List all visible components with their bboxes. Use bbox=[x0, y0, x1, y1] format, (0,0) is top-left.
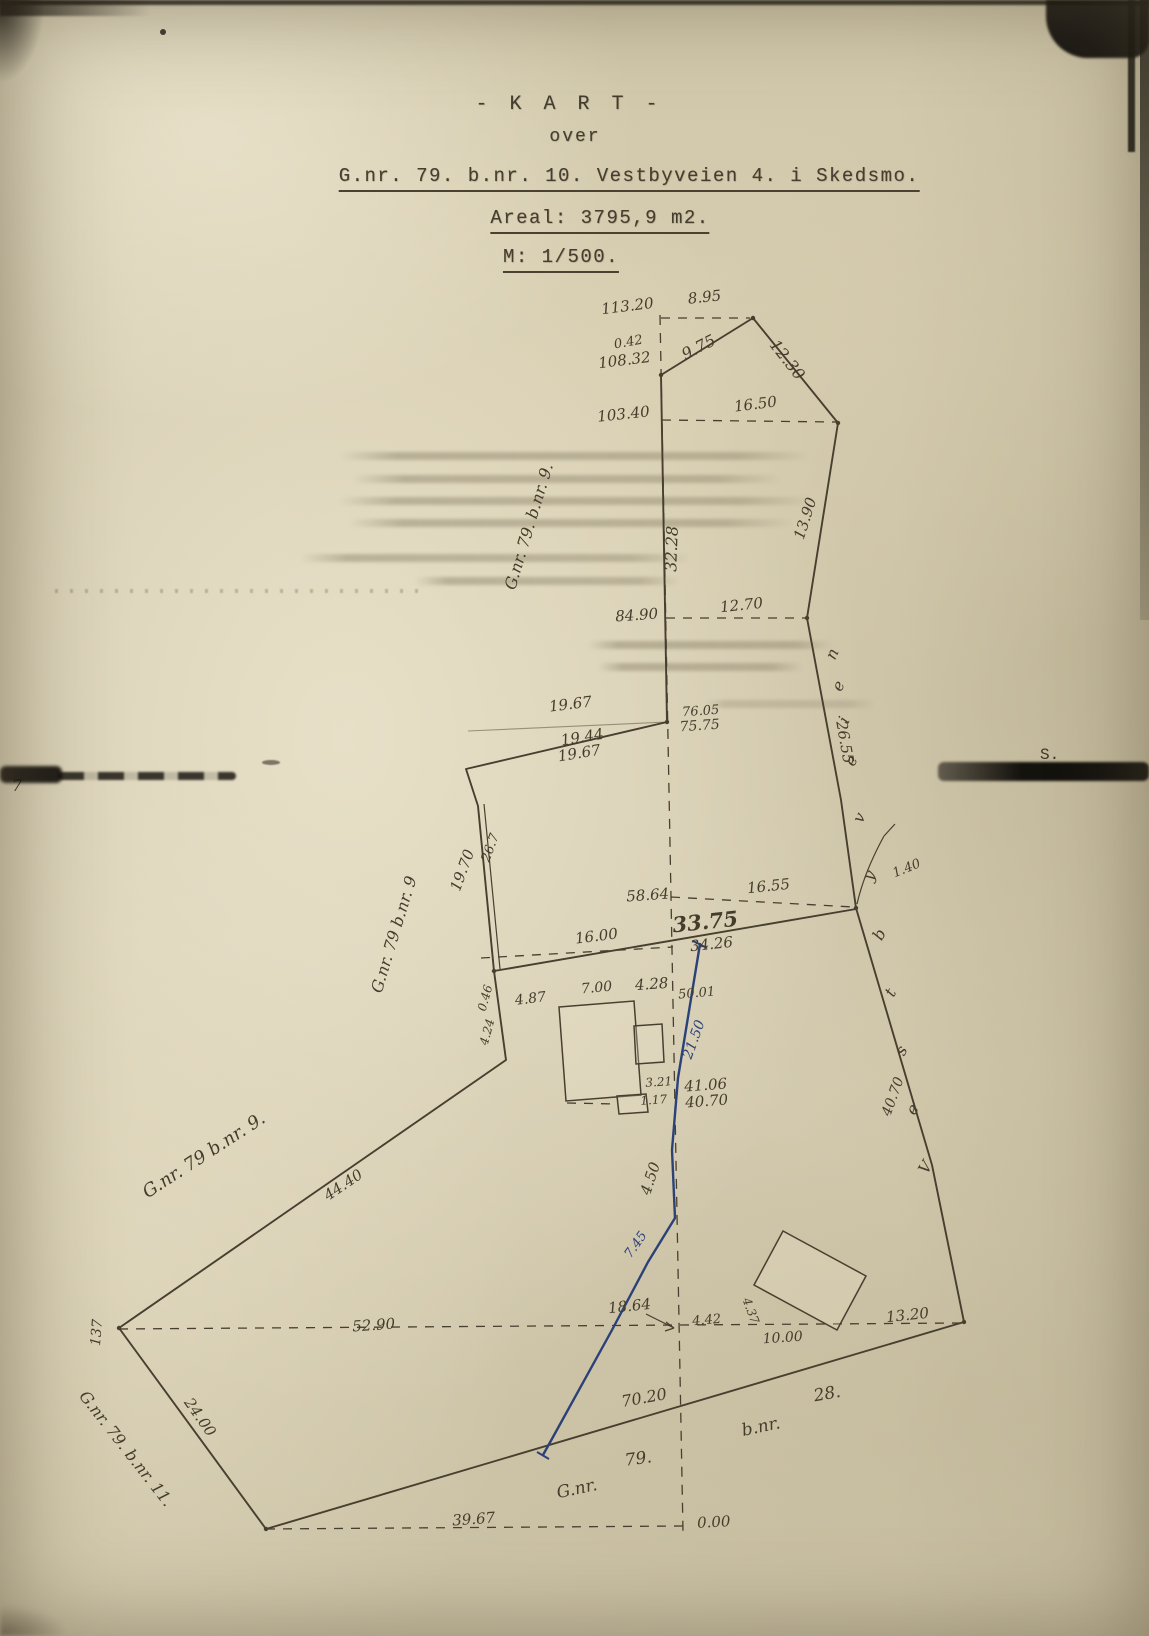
map-label: 4.87 bbox=[513, 989, 547, 1009]
corner-point bbox=[665, 720, 669, 724]
map-label: 3.21 bbox=[645, 1074, 673, 1090]
map-label: 4.50 bbox=[636, 1159, 664, 1198]
map-label: 9.75 bbox=[678, 331, 718, 364]
map-label: 4.24 bbox=[477, 1017, 498, 1047]
map-label: 79. bbox=[624, 1447, 654, 1471]
map-label: 40.70 bbox=[684, 1091, 730, 1112]
map-label: 52.90 bbox=[352, 1315, 397, 1336]
map-label: 19.67 bbox=[548, 692, 593, 715]
map-label: G.nr. 79 b.nr. 9 bbox=[367, 874, 421, 995]
map-label: 1.40 bbox=[890, 856, 922, 881]
corner-point bbox=[264, 1527, 268, 1531]
map-label: 4.28 bbox=[633, 974, 669, 994]
corner-point bbox=[805, 616, 809, 620]
map-label: 44.40 bbox=[320, 1165, 367, 1205]
map-label: 16.55 bbox=[746, 875, 791, 897]
map-label: 0.46 bbox=[475, 983, 496, 1013]
corner-point bbox=[836, 421, 840, 425]
map-label: 0.00 bbox=[697, 1512, 732, 1532]
annotation-line bbox=[884, 824, 895, 836]
map-label: 24.00 bbox=[180, 1394, 220, 1441]
building-outline bbox=[559, 1001, 641, 1101]
map-svg: 113.208.950.42108.329.7512.30103.4016.50… bbox=[0, 0, 1149, 1636]
annotation-line bbox=[646, 1314, 674, 1328]
map-label: 40.70 bbox=[879, 1075, 908, 1119]
map-label: 10.00 bbox=[762, 1329, 803, 1348]
corner-point bbox=[962, 1320, 966, 1324]
map-label: 103.40 bbox=[596, 402, 651, 425]
map-label: 16.50 bbox=[733, 392, 778, 415]
map-label: 34.26 bbox=[689, 933, 734, 955]
map-label: 7.45 bbox=[622, 1229, 651, 1261]
map-label: s bbox=[891, 1042, 912, 1058]
corner-point bbox=[854, 906, 858, 910]
map-label: 108.32 bbox=[597, 348, 651, 372]
map-label: 4.42 bbox=[691, 1312, 722, 1330]
scanned-map-page: - K A R T - over G.nr. 79. b.nr. 10. Ves… bbox=[0, 0, 1149, 1636]
corner-point bbox=[659, 373, 663, 377]
map-label: 26.7 bbox=[478, 831, 503, 865]
dashed-tie-line bbox=[567, 1103, 618, 1104]
map-label: e bbox=[902, 1100, 923, 1118]
building-outline bbox=[754, 1231, 866, 1330]
map-label: 19.70 bbox=[446, 847, 478, 894]
corner-point bbox=[492, 969, 496, 973]
map-label: G.nr. 79 b.nr. 9. bbox=[139, 1108, 269, 1203]
map-label: G.nr. 79. b.nr. 11. bbox=[75, 1387, 177, 1510]
map-label: 50.01 bbox=[678, 984, 716, 1002]
map-label: 28. bbox=[811, 1382, 842, 1407]
map-label: 137 bbox=[88, 1319, 106, 1347]
map-label: 16.00 bbox=[574, 924, 619, 947]
map-label: n bbox=[821, 645, 843, 662]
map-label: 70.20 bbox=[620, 1384, 668, 1411]
corner-point bbox=[751, 316, 755, 320]
building-outline bbox=[634, 1024, 664, 1064]
map-label: 1.17 bbox=[640, 1092, 668, 1108]
map-label: 58.64 bbox=[626, 885, 670, 906]
corner-point bbox=[117, 1326, 121, 1330]
map-label: b.nr. bbox=[740, 1413, 782, 1441]
map-label: b bbox=[868, 925, 890, 943]
map-label: 12.30 bbox=[766, 336, 809, 384]
map-label: y bbox=[858, 866, 880, 884]
map-label: e bbox=[827, 678, 848, 694]
map-label: 39.67 bbox=[452, 1509, 497, 1530]
map-label: 75.75 bbox=[679, 717, 720, 736]
dashed-tie-line bbox=[671, 897, 853, 907]
map-label: 113.20 bbox=[600, 294, 655, 318]
map-label: 7.00 bbox=[580, 979, 613, 998]
map-label: 84.90 bbox=[615, 605, 660, 626]
map-label: 13.90 bbox=[790, 495, 821, 542]
map-label: G.nr. 79. b.nr. 9. bbox=[500, 461, 557, 592]
map-label: 4.37 bbox=[739, 1295, 762, 1326]
edge-note-right: S. bbox=[1040, 746, 1059, 764]
dashed-tie-line bbox=[662, 420, 836, 422]
edge-note-left: 7 bbox=[12, 776, 22, 795]
map-label: 12.70 bbox=[719, 594, 764, 616]
map-label: 32.28 bbox=[661, 526, 682, 572]
map-label: 18.64 bbox=[607, 1295, 652, 1317]
annotation-line bbox=[665, 1328, 674, 1331]
map-label: G.nr. bbox=[555, 1475, 599, 1503]
map-label: 8.95 bbox=[687, 286, 722, 307]
map-label: v bbox=[849, 809, 870, 825]
